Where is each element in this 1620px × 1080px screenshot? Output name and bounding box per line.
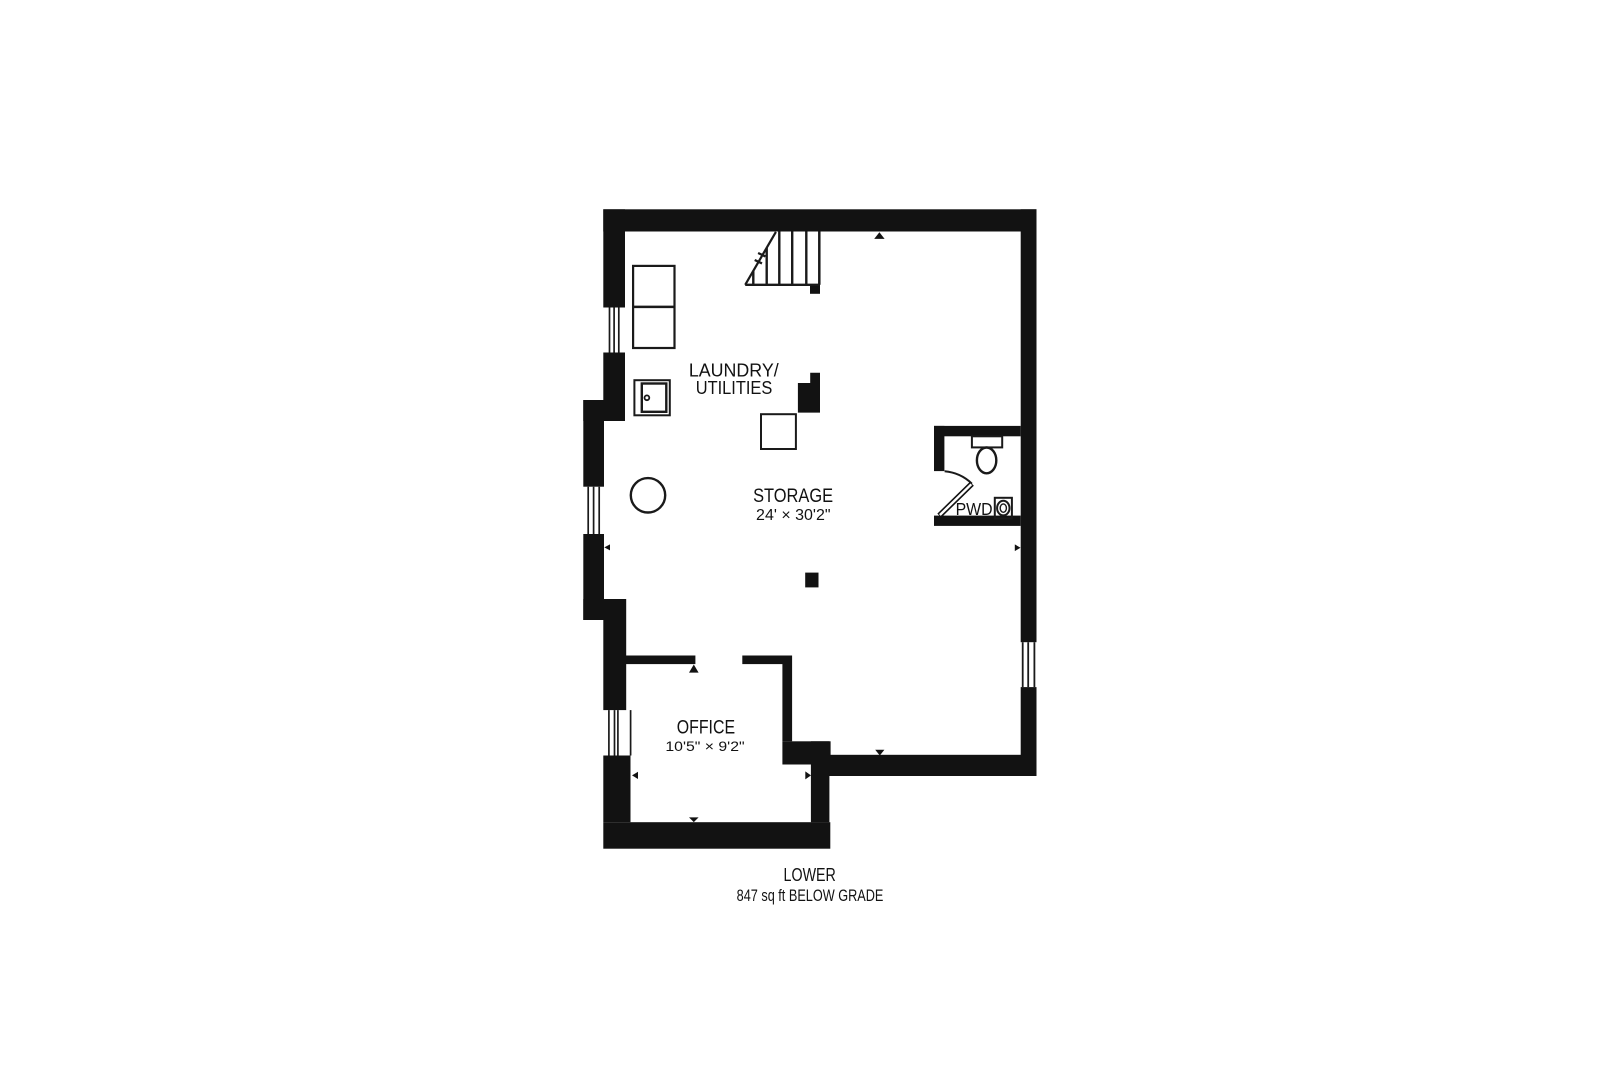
- svg-text:OFFICE: OFFICE: [677, 718, 735, 739]
- svg-text:STORAGE: STORAGE: [753, 486, 833, 507]
- svg-text:PWD: PWD: [956, 499, 993, 519]
- svg-text:847 sq ft BELOW GRADE: 847 sq ft BELOW GRADE: [737, 886, 884, 905]
- svg-text:24' × 30'2": 24' × 30'2": [756, 507, 831, 524]
- svg-text:10'5" × 9'2": 10'5" × 9'2": [665, 738, 744, 754]
- svg-text:UTILITIES: UTILITIES: [696, 377, 773, 398]
- svg-text:LOWER: LOWER: [784, 864, 836, 885]
